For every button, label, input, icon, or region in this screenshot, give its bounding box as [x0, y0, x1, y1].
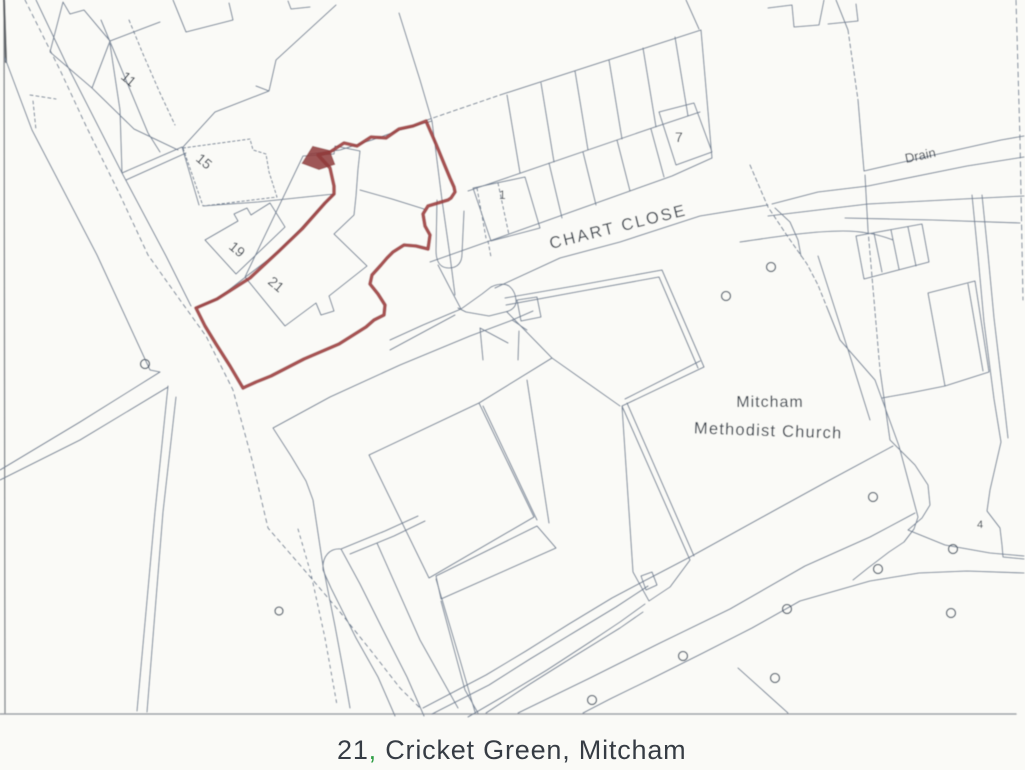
- svg-text:7: 7: [675, 129, 683, 145]
- svg-text:4: 4: [977, 519, 983, 531]
- svg-text:1: 1: [499, 188, 506, 202]
- svg-text:21, Cricket Green, Mitcham: 21, Cricket Green, Mitcham: [337, 735, 686, 765]
- svg-text:Mitcham: Mitcham: [736, 394, 803, 411]
